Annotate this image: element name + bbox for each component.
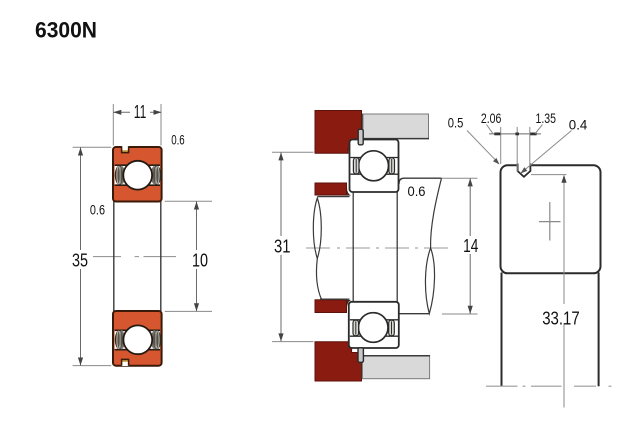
svg-text:11: 11: [134, 101, 147, 122]
svg-text:1.35: 1.35: [536, 110, 557, 126]
svg-text:0.5: 0.5: [448, 115, 464, 131]
svg-text:0.6: 0.6: [171, 132, 185, 148]
svg-text:6300N: 6300N: [35, 18, 97, 43]
svg-text:35: 35: [72, 250, 88, 271]
svg-text:2.06: 2.06: [481, 110, 502, 126]
svg-text:0.6: 0.6: [408, 183, 426, 199]
svg-text:0.4: 0.4: [569, 117, 588, 133]
svg-text:33.17: 33.17: [542, 307, 580, 328]
svg-text:10: 10: [192, 250, 208, 271]
svg-text:0.6: 0.6: [90, 202, 105, 218]
svg-text:14: 14: [463, 235, 478, 256]
svg-text:31: 31: [274, 235, 291, 256]
